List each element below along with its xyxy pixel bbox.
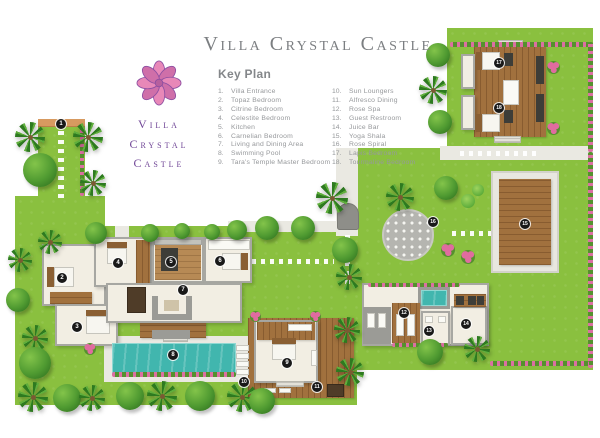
legend-item-label: Citrine Bedroom [231, 106, 283, 115]
tree-icon [332, 237, 358, 263]
villa-logo: Villa Crystal Castle [105, 60, 213, 174]
legend-item-label: Rose Spa [349, 106, 380, 115]
palm-tree-icon [79, 385, 105, 411]
pink-flower-bush-icon [547, 61, 560, 74]
legend-item-8: 8.Swimming Pool [218, 150, 330, 159]
legend-item-4: 4.Celestite Bedroom [218, 115, 330, 124]
map-marker-9: 9 [282, 358, 292, 368]
driveway-stepping-stones [58, 128, 64, 198]
map-marker-17: 17 [494, 58, 504, 68]
east-hedge-top [588, 42, 593, 152]
legend-item-label: Tara's Temple Master Bedroom [231, 159, 330, 168]
legend-item-number: 13. [332, 115, 349, 124]
map-marker-16: 16 [428, 217, 438, 227]
northeast-counter-1 [536, 56, 544, 84]
legend-item-label: Topaz Bedroom [231, 97, 281, 106]
legend-item-10: 10.Sun Loungers [332, 88, 444, 97]
legend-item-number: 11. [332, 97, 349, 106]
plunge-pool [421, 290, 447, 306]
legend-item-number: 4. [218, 115, 231, 124]
legend-item-label: Swimming Pool [231, 150, 280, 159]
north-hedge [450, 42, 590, 47]
legend-item-number: 3. [218, 106, 231, 115]
pink-flower-bush-icon [310, 311, 321, 322]
map-marker-14: 14 [461, 319, 471, 329]
topaz-headboard [47, 267, 54, 287]
legend-item-label: Lapis Bedroom [349, 150, 397, 159]
tree-icon [291, 216, 315, 240]
legend-item-9: 9.Tara's Temple Master Bedroom [218, 159, 330, 168]
palm-tree-icon [316, 182, 348, 214]
kitchen-counter [154, 239, 202, 245]
legend-item-number: 10. [332, 88, 349, 97]
palm-tree-icon [8, 248, 32, 272]
pink-flower-bush-icon [250, 311, 261, 322]
sun-lounger-4 [236, 369, 249, 375]
crystal-flower-icon [136, 60, 182, 106]
tree-icon [255, 216, 279, 240]
tree-icon [174, 223, 190, 239]
palm-tree-icon [336, 264, 362, 290]
legend-item-number: 1. [218, 88, 231, 97]
celestite-floor [136, 240, 150, 284]
palm-tree-icon [386, 183, 414, 211]
legend-item-number: 16. [332, 141, 349, 150]
legend-item-number: 2. [218, 97, 231, 106]
northeast-bathroom-2 [461, 95, 475, 130]
map-marker-3: 3 [72, 322, 82, 332]
lapis-cabinet [504, 53, 513, 66]
legend-item-label: Sun Loungers [349, 88, 394, 97]
sun-lounger-1 [236, 345, 249, 351]
palm-tree-icon [336, 358, 364, 386]
tree-icon [141, 224, 159, 242]
yoga-stepping-stones [452, 231, 492, 236]
pool-hedge [112, 372, 236, 377]
palm-tree-icon [15, 122, 45, 152]
tree-icon [6, 288, 30, 312]
map-marker-11: 11 [312, 382, 322, 392]
palm-tree-icon [38, 230, 62, 254]
tourmaline-bed [482, 114, 500, 132]
map-marker-1: 1 [56, 119, 66, 129]
legend-item-label: Kitchen [231, 124, 255, 133]
juice-appliance-1 [456, 296, 464, 305]
map-marker-18: 18 [494, 103, 504, 113]
map-marker-4: 4 [113, 258, 123, 268]
legend-item-number: 9. [218, 159, 231, 168]
palm-tree-icon [18, 382, 48, 412]
juice-appliance-2 [468, 296, 476, 305]
map-marker-15: 15 [520, 219, 530, 229]
legend-item-label: Celestite Bedroom [231, 115, 290, 124]
map-marker-8: 8 [168, 350, 178, 360]
master-steps [276, 381, 304, 387]
legend-item-label: Juice Bar [349, 124, 379, 133]
key-plan-column-right: 10.Sun Loungers11.Alfresco Dining12.Rose… [332, 88, 444, 168]
legend-item-number: 18. [332, 159, 349, 168]
legend-item-11: 11.Alfresco Dining [332, 97, 444, 106]
carnelian-headboard [241, 253, 248, 270]
legend-item-label: Villa Entrance [231, 88, 276, 97]
tree-icon [185, 381, 215, 411]
northeast-steps-bottom [494, 136, 521, 143]
tree-icon [19, 347, 51, 379]
key-plan-heading: Key Plan [218, 67, 271, 81]
green-bush-icon [461, 194, 475, 208]
carnelian-bathroom [208, 240, 250, 250]
villa-site-plan-page: Villa Crystal Castle Villa Crystal Castl… [0, 0, 600, 438]
pink-flower-bush-icon [547, 122, 560, 135]
legend-item-13: 13.Guest Restroom [332, 115, 444, 124]
tree-icon [85, 222, 107, 244]
map-marker-2: 2 [57, 273, 67, 283]
northeast-stepping-stones [460, 151, 536, 156]
map-marker-7: 7 [178, 285, 188, 295]
legend-item-1: 1.Villa Entrance [218, 88, 330, 97]
legend-item-label: Rose Spiral [349, 141, 386, 150]
master-wardrobe [288, 324, 312, 331]
green-bush-icon [472, 184, 484, 196]
legend-item-7: 7.Living and Dining Area [218, 141, 330, 150]
legend-item-2: 2.Topaz Bedroom [218, 97, 330, 106]
logo-line-3: Castle [105, 154, 213, 174]
juice-appliance-3 [477, 296, 484, 305]
sun-lounger-2 [236, 353, 249, 359]
tree-icon [434, 176, 458, 200]
legend-item-label: Tourmaline Bedroom [349, 159, 415, 168]
legend-item-label: Carnelian Bedroom [231, 133, 293, 142]
logo-line-2: Crystal [105, 135, 213, 155]
tree-icon [116, 382, 144, 410]
palm-tree-icon [147, 381, 177, 411]
northeast-bathroom-1 [461, 54, 475, 89]
spa-lounger-2 [378, 313, 386, 328]
sun-lounger-3 [236, 361, 249, 367]
map-marker-6: 6 [215, 256, 225, 266]
legend-item-number: 8. [218, 150, 231, 159]
map-marker-10: 10 [239, 377, 249, 387]
legend-item-number: 14. [332, 124, 349, 133]
restroom-fixture-1 [425, 316, 433, 323]
tree-icon [53, 384, 81, 412]
key-plan-column-left: 1.Villa Entrance2.Topaz Bedroom3.Citrine… [218, 88, 330, 168]
legend-item-label: Living and Dining Area [231, 141, 303, 150]
legend-item-number: 12. [332, 106, 349, 115]
legend-item-label: Guest Restroom [349, 115, 401, 124]
legend-item-12: 12.Rose Spa [332, 106, 444, 115]
pool-mat [152, 330, 190, 339]
alfresco-dining-table [327, 384, 344, 397]
palm-tree-icon [334, 317, 360, 343]
northeast-hall-table [503, 80, 519, 105]
dining-table [127, 287, 146, 313]
map-marker-13: 13 [424, 326, 434, 336]
deck-lounger-2 [279, 388, 291, 393]
tree-icon [417, 339, 443, 365]
massage-bed-2 [407, 314, 415, 336]
legend-item-number: 5. [218, 124, 231, 133]
palm-tree-icon [464, 336, 490, 362]
legend-item-16: 16.Rose Spiral [332, 141, 444, 150]
legend-item-5: 5.Kitchen [218, 124, 330, 133]
palm-tree-icon [73, 122, 103, 152]
south-hedge [490, 361, 589, 366]
map-marker-12: 12 [399, 308, 409, 318]
tree-icon [249, 388, 275, 414]
logo-line-1: Villa [105, 115, 213, 135]
rose-spiral-garden [382, 209, 434, 261]
restroom-fixture-2 [438, 316, 446, 323]
tree-icon [227, 220, 247, 240]
legend-item-14: 14.Juice Bar [332, 124, 444, 133]
northeast-counter-2 [536, 94, 544, 122]
map-marker-5: 5 [166, 257, 176, 267]
legend-item-17: 17.Lapis Bedroom [332, 150, 444, 159]
pink-flower-bush-icon [441, 243, 455, 257]
coffee-table [164, 300, 179, 311]
sofa-front [152, 314, 192, 320]
legend-item-3: 3.Citrine Bedroom [218, 106, 330, 115]
legend-item-15: 15.Yoga Shala [332, 133, 444, 142]
legend-item-6: 6.Carnelian Bedroom [218, 133, 330, 142]
central-stepping-stones [252, 259, 334, 264]
page-title: Villa Crystal Castle [198, 33, 438, 56]
legend-item-label: Alfresco Dining [349, 97, 398, 106]
legend-item-number: 6. [218, 133, 231, 142]
palm-tree-icon [80, 170, 106, 196]
spa-lounger-1 [367, 313, 375, 328]
legend-item-number: 15. [332, 133, 349, 142]
legend-item-number: 17. [332, 150, 349, 159]
legend-item-label: Yoga Shala [349, 133, 386, 142]
topaz-deck [50, 292, 92, 304]
logo-wordmark: Villa Crystal Castle [105, 115, 213, 174]
tree-icon [204, 224, 220, 240]
site-plan: 123456789101112131415161718 [0, 0, 600, 438]
tree-icon [23, 153, 57, 187]
tourmaline-cabinet [504, 110, 513, 123]
pink-flower-bush-icon [84, 343, 96, 355]
master-door [311, 350, 317, 366]
legend-item-18: 18.Tourmaline Bedroom [332, 159, 444, 168]
east-hedge [588, 152, 593, 368]
legend-item-number: 7. [218, 141, 231, 150]
pink-flower-bush-icon [461, 250, 475, 264]
